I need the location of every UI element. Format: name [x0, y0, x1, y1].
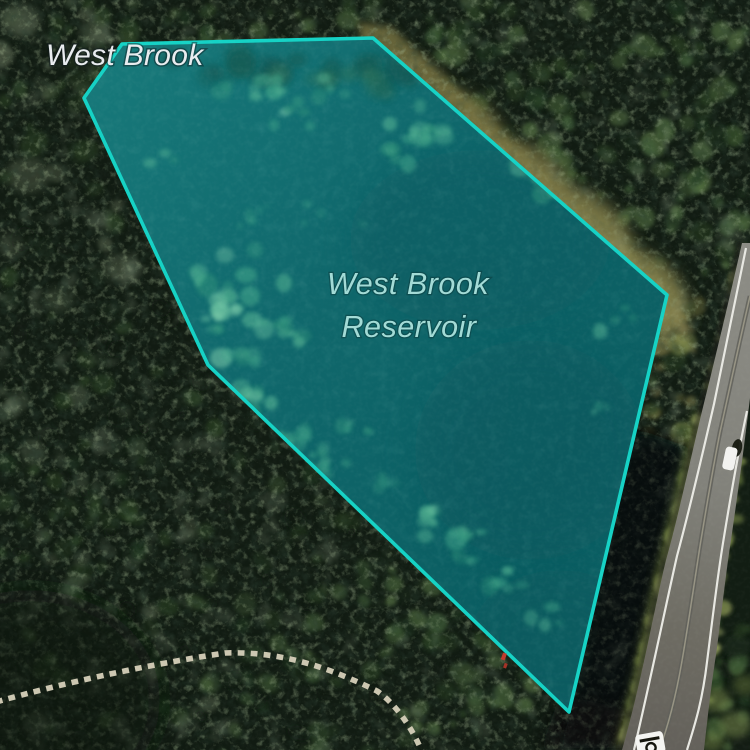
svg-text:West Brook: West Brook	[327, 267, 490, 301]
svg-text:West Brook: West Brook	[46, 39, 205, 72]
svg-text:Reservoir: Reservoir	[341, 310, 477, 344]
